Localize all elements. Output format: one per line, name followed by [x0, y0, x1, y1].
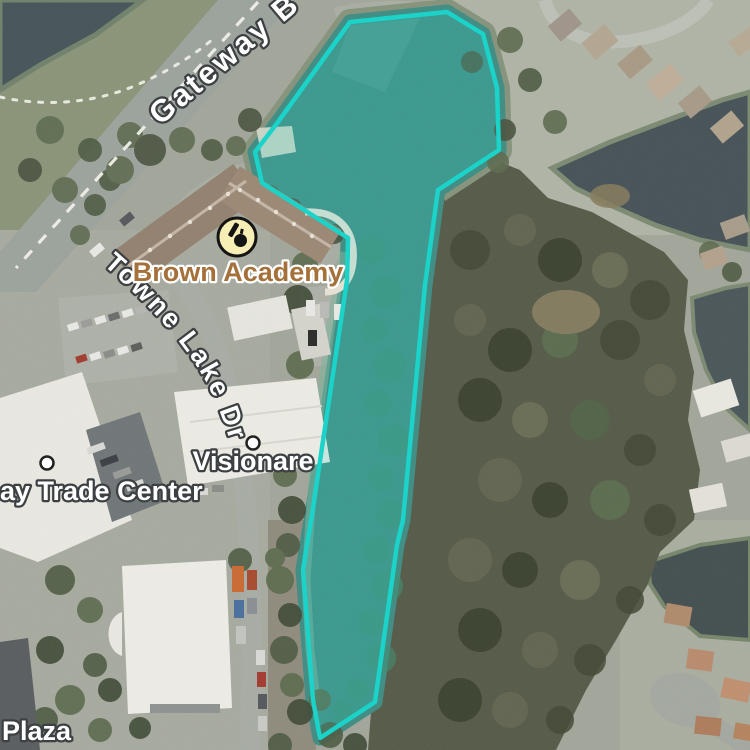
poi-label-plaza[interactable]: Plaza [2, 716, 72, 746]
satellite-map[interactable]: Gateway B Towne Lake Dr Brown Academy Vi… [0, 0, 750, 750]
school-icon[interactable] [218, 218, 256, 256]
poi-label-visionare[interactable]: Visionare [192, 446, 313, 476]
poi-dot[interactable] [41, 457, 54, 470]
poi-label-trade-center[interactable]: ay Trade Center [0, 476, 203, 506]
poi-label-brown-academy[interactable]: Brown Academy [133, 257, 344, 287]
